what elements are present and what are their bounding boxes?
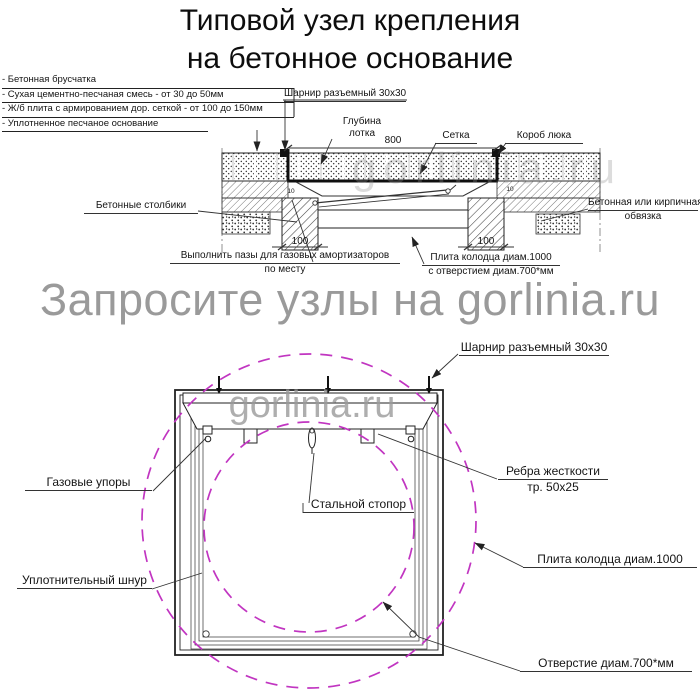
- label-ribs-line1: Ребра жесткости: [498, 465, 608, 480]
- label-binding-line1: Бетонная или кирпичная: [588, 197, 698, 211]
- title-line1: Типовой узел крепления: [0, 2, 700, 40]
- well-slab: [318, 210, 468, 228]
- label-steel-stopper: Стальной стопор: [303, 498, 414, 513]
- label-well-slab-line1: Плита колодца диам.1000: [422, 252, 560, 266]
- legend-item: - Уплотненное песчаное основание: [2, 118, 208, 133]
- label-grooves-line1: Выполнить пазы для газовых амортизаторов: [170, 250, 400, 264]
- legend-item: - Ж/б плита с армированием дор. сеткой -…: [2, 103, 294, 118]
- dim-label-100-right: 100: [473, 236, 499, 248]
- legend-item: - Бетонная брусчатка: [2, 74, 294, 89]
- materials-legend: - Бетонная брусчатка - Сухая цементно-пе…: [2, 74, 294, 132]
- footing-left: [222, 212, 270, 234]
- watermark-brand-section: gorlinia.ru: [272, 144, 700, 194]
- label-opening: Отверстие диам.700*мм: [520, 657, 692, 672]
- binding-left: [222, 198, 282, 212]
- dim-label-10-right: 10: [503, 186, 517, 193]
- label-hinge-plan: Шарнир разъемный 30x30: [459, 341, 609, 356]
- watermark-main: Запросите узлы на gorlinia.ru: [0, 274, 700, 326]
- label-hatch-box: Короб люка: [505, 130, 583, 144]
- drawing-page: Типовой узел крепления на бетонное основ…: [0, 0, 700, 700]
- label-mesh: Сетка: [435, 130, 477, 144]
- label-ribs-line2: тр. 50x25: [498, 481, 608, 494]
- label-concrete-posts: Бетонные столбики: [84, 200, 198, 214]
- label-slab-plan: Плита колодца диам.1000: [523, 553, 697, 568]
- label-hinge-section: Шарнир разъемный 30x30: [284, 88, 406, 102]
- page-title: Типовой узел крепления на бетонное основ…: [0, 2, 700, 78]
- frame-outer: [175, 390, 443, 655]
- corner-hole-left: [203, 631, 209, 637]
- rib-tab-left: [244, 429, 257, 443]
- label-gas-struts: Газовые упоры: [25, 476, 152, 491]
- label-seal-cord: Уплотнительный шнур: [17, 574, 152, 589]
- label-binding-line2: обвязка: [588, 211, 698, 223]
- dim-label-100-left: 100: [287, 236, 313, 248]
- watermark-brand-plan: gorlinia.ru: [192, 384, 432, 427]
- dim-label-10-left: 10: [284, 188, 298, 195]
- dim-label-800: 800: [377, 135, 409, 147]
- title-line2: на бетонное основание: [0, 40, 700, 78]
- legend-item: - Сухая цементно-песчаная смесь - от 30 …: [2, 89, 294, 104]
